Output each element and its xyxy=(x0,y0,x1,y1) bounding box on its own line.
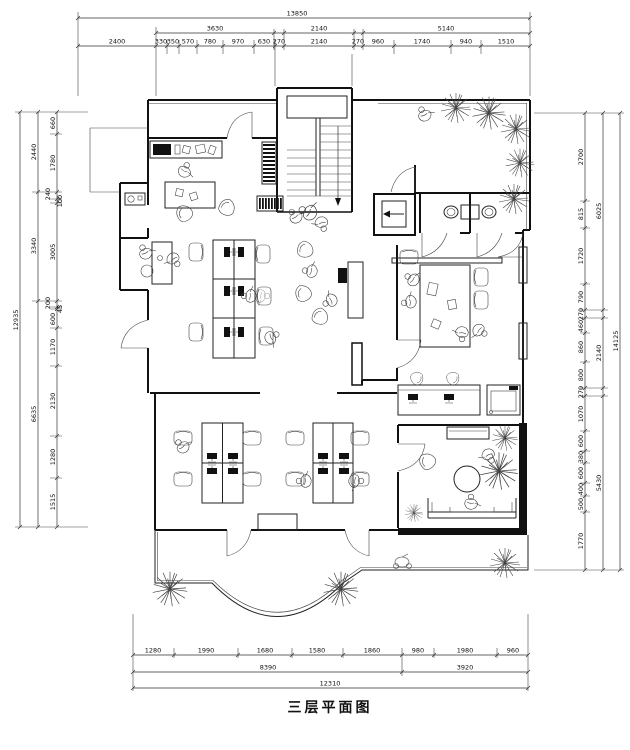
dim-label: 1170 xyxy=(49,339,57,356)
dim-label: 5140 xyxy=(438,25,455,33)
dim-label: 600 xyxy=(577,467,585,479)
dim-label: 815 xyxy=(577,208,585,220)
dim-label: 1680 xyxy=(257,647,274,655)
dim-label: 1280 xyxy=(49,449,57,466)
dim-label: 2400 xyxy=(109,38,126,46)
palm-plant-icon xyxy=(473,97,506,130)
dim-label: 14125 xyxy=(612,331,620,352)
dim-label: 2140 xyxy=(311,25,328,33)
dim-label: 970 xyxy=(232,38,244,46)
dim-label: 940 xyxy=(460,38,472,46)
dim-label: 380 xyxy=(577,451,585,463)
dim-label: 600 xyxy=(49,313,57,325)
dim-label: 500 xyxy=(577,498,585,510)
dim-label: 960 xyxy=(372,38,384,46)
dim-label: 1070 xyxy=(577,406,585,423)
dim-label: 3630 xyxy=(207,25,224,33)
conference-table xyxy=(392,258,502,347)
dim-label: 270 xyxy=(352,38,364,46)
dim-label: 1580 xyxy=(309,647,326,655)
floor-plan-page: 13850 3630 2140 5140 2400 330 350 570 78… xyxy=(0,0,630,750)
equipment-counter xyxy=(150,141,222,158)
dim-label: 330 xyxy=(155,38,167,46)
palm-plant-icon xyxy=(490,548,520,578)
dim-label: 980 xyxy=(412,647,424,655)
drawing-title: 三层平面图 xyxy=(288,700,373,716)
dim-label: 13850 xyxy=(287,10,308,18)
palm-plant-icon xyxy=(492,425,518,451)
desk-cluster-4 xyxy=(313,423,353,503)
dim-label: 2140 xyxy=(595,345,603,362)
dimension-layer-bottom: 1280 1990 1680 1580 1860 980 1980 960 83… xyxy=(131,614,530,691)
dim-label: 270 xyxy=(273,38,285,46)
sofa-bench xyxy=(428,498,516,518)
hatch-shelf xyxy=(257,142,283,211)
dim-label: 5430 xyxy=(595,475,603,492)
dim-label: 600 xyxy=(577,435,585,447)
walls-layer xyxy=(90,100,530,617)
floor-plan-svg: 13850 3630 2140 5140 2400 330 350 570 78… xyxy=(0,0,630,750)
desk-cluster-4 xyxy=(202,423,243,503)
copier xyxy=(487,385,520,415)
dim-label: 1510 xyxy=(498,38,515,46)
dim-label: 1740 xyxy=(414,38,431,46)
dim-label: 660 xyxy=(49,117,57,129)
dim-label: 1280 xyxy=(145,647,162,655)
dim-label: 350 xyxy=(167,38,179,46)
dim-label: 2440 xyxy=(30,144,38,161)
dim-label: 270 xyxy=(577,386,585,398)
dim-label: 100 xyxy=(56,195,64,207)
desk xyxy=(165,182,215,208)
dim-label: 12310 xyxy=(320,680,341,688)
dim-label: 800 xyxy=(577,369,585,381)
dim-label: 270 xyxy=(577,308,585,320)
dimension-layer-top: 13850 3630 2140 5140 2400 330 350 570 78… xyxy=(76,10,532,97)
whiteboard xyxy=(338,262,363,318)
dim-label: 630 xyxy=(258,38,270,46)
palm-plant-icon xyxy=(153,572,188,607)
dim-label: 200 xyxy=(44,297,52,309)
palm-plant-icon xyxy=(441,93,471,123)
dim-label: 6025 xyxy=(595,203,603,220)
palm-plant-icon xyxy=(499,184,529,214)
palm-plant-icon xyxy=(324,572,359,607)
dim-label: 570 xyxy=(182,38,194,46)
furniture-layer xyxy=(125,141,520,569)
stairs xyxy=(257,88,352,212)
toilet-icon xyxy=(444,205,470,219)
dimension-layer-right: 2700 815 1720 790 270 460 860 800 270 10… xyxy=(534,111,624,572)
dim-label: 1980 xyxy=(457,647,474,655)
dim-label: 45 xyxy=(56,305,64,313)
dim-label: 1770 xyxy=(577,533,585,550)
dim-label: 2140 xyxy=(311,38,328,46)
desk-cluster-6 xyxy=(213,240,255,358)
people-layer xyxy=(136,102,499,509)
dim-label: 6635 xyxy=(30,406,38,423)
sink-icon xyxy=(125,193,145,205)
dim-label: 240 xyxy=(44,188,52,200)
doors-layer xyxy=(121,112,523,556)
cart-icon xyxy=(394,554,412,569)
dim-label: 8390 xyxy=(260,664,277,672)
dim-label: 1860 xyxy=(364,647,381,655)
dimension-layer-left: 660 1780 240 100 3005 200 45 600 1170 21… xyxy=(12,110,88,529)
monitors-layer xyxy=(207,247,454,474)
dim-label: 3340 xyxy=(30,238,38,255)
elevator-icon xyxy=(382,201,406,227)
dim-label: 2700 xyxy=(577,149,585,166)
palm-plant-icon xyxy=(405,504,423,522)
round-table xyxy=(454,466,480,492)
toilet-icon xyxy=(470,205,496,219)
dim-label: 2130 xyxy=(49,393,57,410)
dim-label: 960 xyxy=(507,647,519,655)
dim-label: 3005 xyxy=(49,244,57,261)
dim-label: 780 xyxy=(204,38,216,46)
dim-label: 1515 xyxy=(49,494,57,511)
dim-label: 400 xyxy=(577,483,585,495)
lounge-cabinet xyxy=(447,427,489,439)
dim-label: 1780 xyxy=(49,155,57,172)
dim-label: 1720 xyxy=(577,248,585,265)
dim-label: 790 xyxy=(577,291,585,303)
dim-label: 1990 xyxy=(198,647,215,655)
dim-label: 860 xyxy=(577,341,585,353)
palm-plant-icon xyxy=(480,452,518,490)
dim-label: 12935 xyxy=(12,310,20,331)
dim-label: 3920 xyxy=(457,664,474,672)
dim-label: 460 xyxy=(577,320,585,332)
